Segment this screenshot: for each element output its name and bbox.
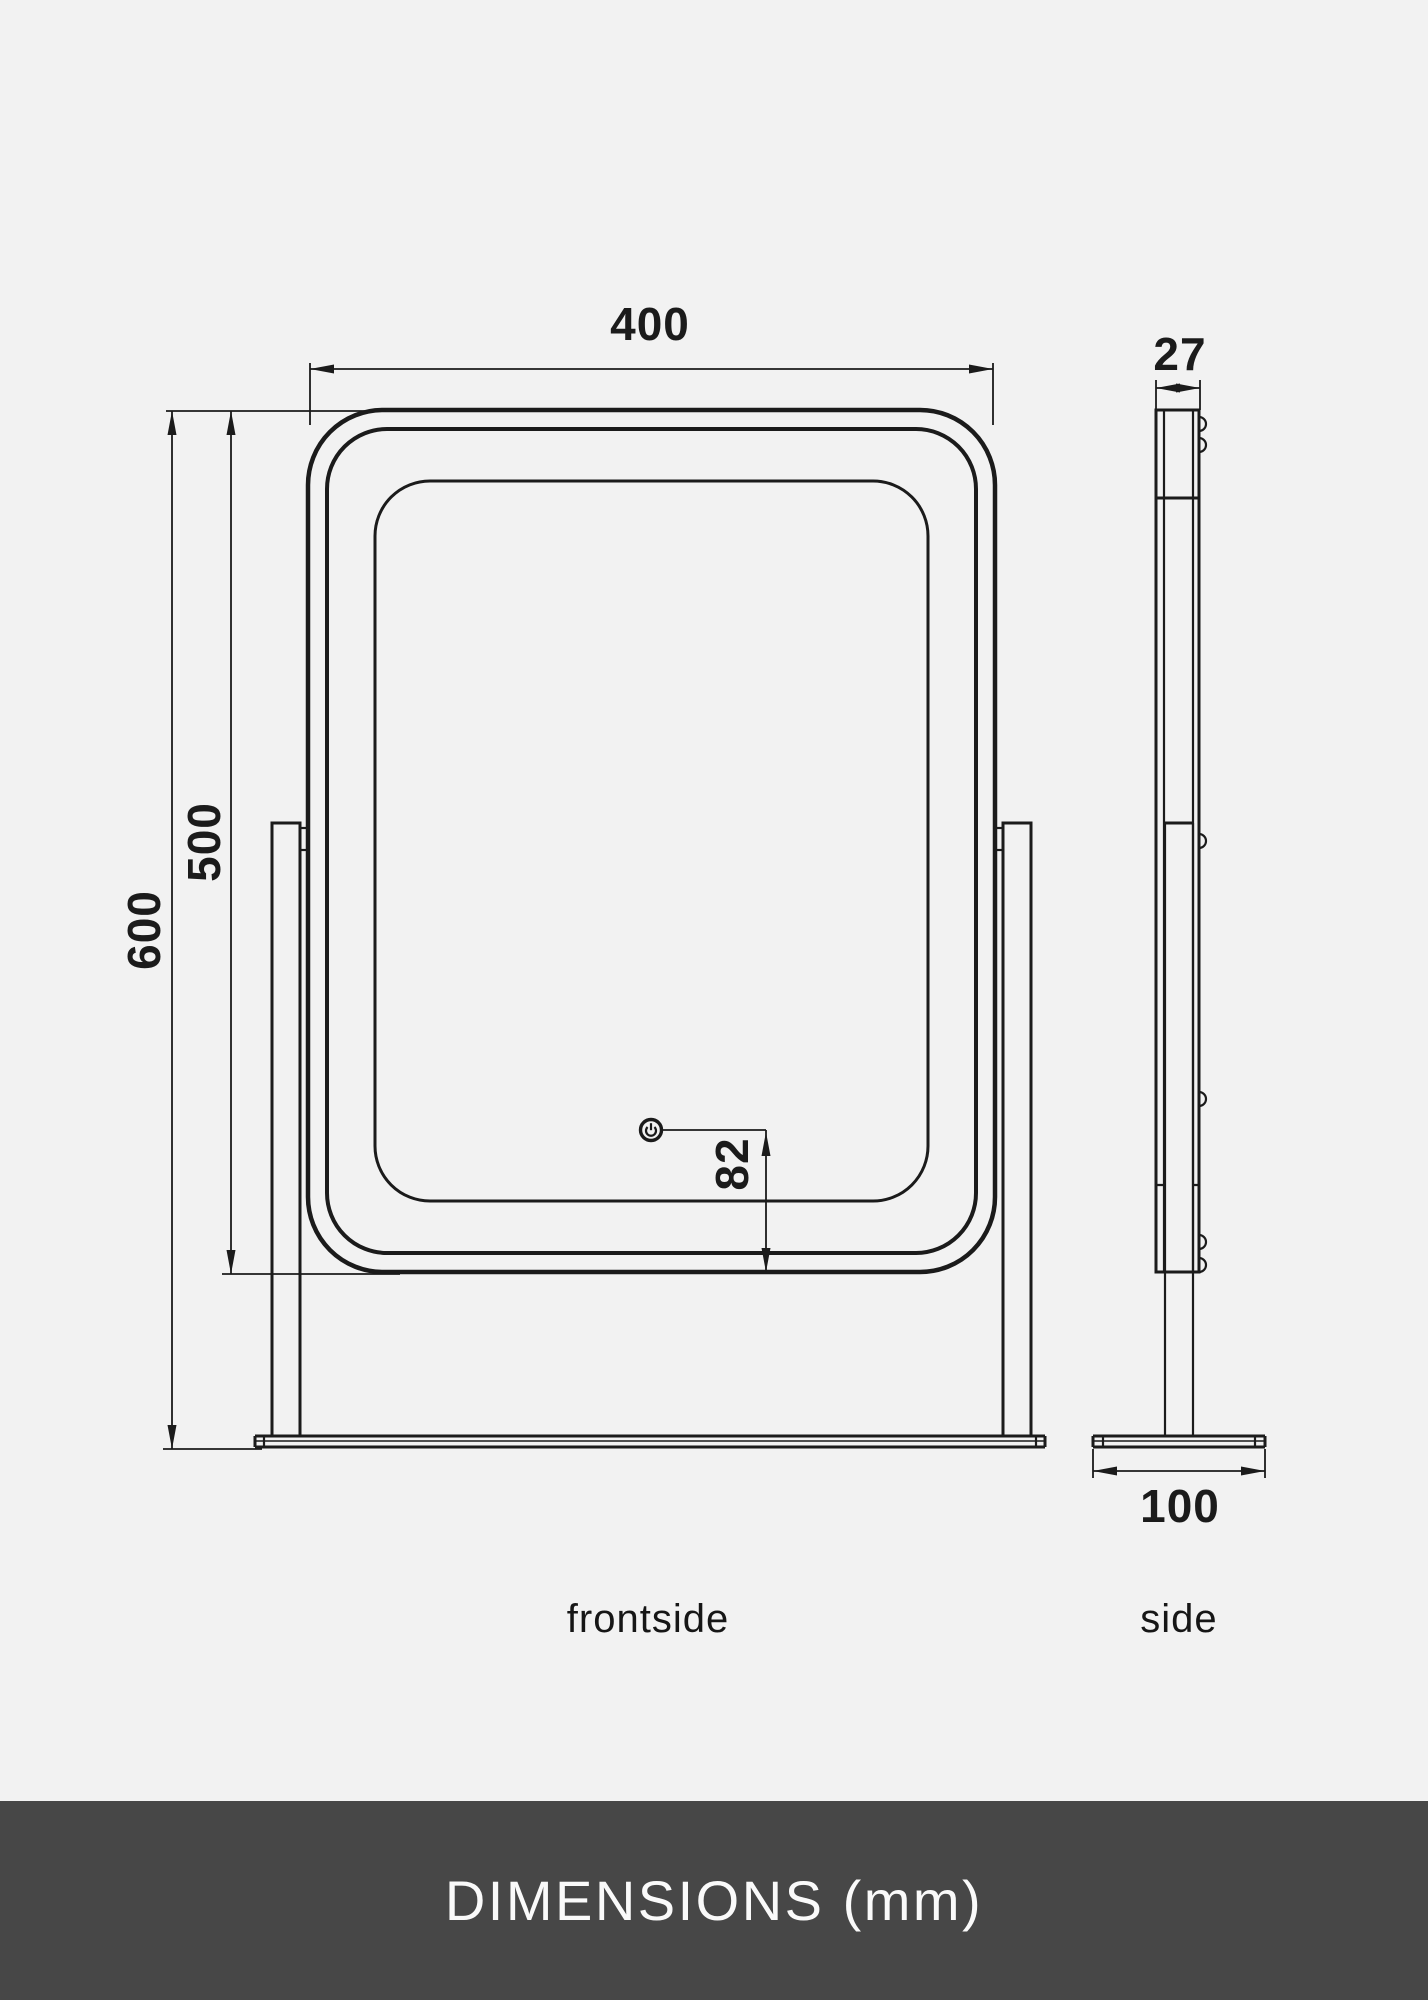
mirror-outer-frame (308, 410, 995, 1272)
arrowhead-down (227, 1250, 236, 1274)
arrowhead-left (1093, 1467, 1117, 1476)
footer-caption-text: DIMENSIONS (mm) (445, 1868, 983, 1933)
dim-front-width: 400 (310, 298, 993, 425)
technical-drawing: 400 600 500 82 (0, 0, 1428, 2000)
arrowhead-right (969, 365, 993, 374)
arrowhead-up (168, 411, 177, 435)
stand-leg-right (1003, 823, 1031, 1436)
arrowhead-right (1241, 1467, 1265, 1476)
stand-base-front (255, 1436, 1045, 1447)
dim-side-base-depth-value: 100 (1140, 1480, 1220, 1532)
stand-leg-side (1165, 823, 1193, 1437)
dim-front-button-offset-value: 82 (706, 1137, 758, 1190)
dim-side-base-depth: 100 (1093, 1449, 1265, 1532)
arrowhead-down (168, 1425, 177, 1449)
dim-front-height-mirror: 500 (178, 411, 400, 1274)
dim-front-height-total-value: 600 (118, 890, 170, 970)
mirror-stand-side (1093, 823, 1265, 1447)
dim-front-height-mirror-value: 500 (178, 802, 230, 882)
power-icon (641, 1120, 662, 1141)
mirror-front (308, 410, 995, 1272)
dim-front-width-value: 400 (610, 298, 690, 350)
arrowhead-down (762, 1248, 771, 1272)
arrowhead-right (1176, 384, 1200, 393)
dim-side-thickness-value: 27 (1153, 328, 1206, 380)
arrowhead-up (762, 1132, 771, 1156)
footer-caption-bar: DIMENSIONS (mm) (0, 1801, 1428, 2000)
side-view: 27 100 side (1093, 328, 1265, 1641)
dim-side-thickness: 27 (1153, 328, 1206, 410)
dim-front-height-total: 600 (118, 411, 262, 1449)
front-view-label: frontside (567, 1597, 729, 1641)
side-view-label: side (1140, 1597, 1217, 1641)
arrowhead-left (310, 365, 334, 374)
dimension-drawing-page: 400 600 500 82 (0, 0, 1428, 2000)
stand-leg-left (272, 823, 300, 1436)
stand-base-side (1093, 1436, 1265, 1447)
panel-layer-lines (1164, 410, 1193, 1272)
front-view: 400 600 500 82 (118, 298, 1045, 1641)
arrowhead-up (227, 411, 236, 435)
mirror-panel-side (1156, 410, 1206, 1272)
mirror-glass-area (375, 481, 928, 1201)
